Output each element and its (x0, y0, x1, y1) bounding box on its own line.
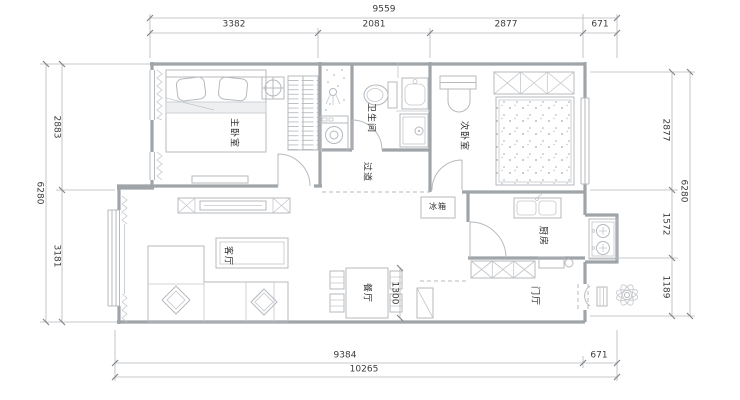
second-bed-icon (496, 97, 574, 185)
room-label-living-room: 客厅 (223, 246, 232, 266)
room-label-master-bedroom: 主卧室 (229, 118, 238, 148)
floor-plan-drawing (0, 0, 740, 400)
dim-dining-width: 1300 (390, 282, 399, 305)
room-label-kitchen: 厨房 (538, 226, 547, 246)
fridge-label: 冰箱 (429, 203, 447, 211)
room-label-entry-hall: 门厅 (530, 286, 539, 306)
ceiling-lamp-icon (262, 77, 284, 99)
room-label-hallway: 过道 (362, 162, 371, 182)
dim-bottom-total: 10265 (350, 366, 379, 375)
entry-door-icon (585, 286, 607, 306)
shower-icon (325, 69, 345, 111)
dim-right-seg-1: 2877 (661, 119, 670, 142)
master-bed-icon (166, 70, 266, 152)
washbasin-icon (402, 78, 428, 109)
floor-plan-canvas: 9559 3382 2081 2877 671 6280 2883 3181 6… (0, 0, 740, 400)
plant-icon (615, 283, 639, 307)
washing-machine-icon (320, 116, 348, 151)
kitchen-sink-icon (514, 193, 561, 218)
room-label-second-bedroom: 次卧室 (459, 121, 468, 151)
hall-cabinet-icon (417, 288, 433, 318)
bedroom-bench-icon (192, 176, 248, 183)
dim-right-seg-3: 1189 (661, 276, 670, 299)
dim-left-total: 6280 (35, 182, 44, 205)
dim-top-seg-3: 2877 (495, 21, 518, 30)
dim-top-seg-1: 3382 (223, 21, 246, 30)
dim-bottom-seg-2: 671 (590, 352, 607, 361)
dim-left-seg-1: 2883 (52, 116, 61, 139)
sofa-icon (148, 246, 288, 322)
dim-bottom-seg-1: 9384 (334, 352, 357, 361)
desk-chair-icon (440, 76, 476, 112)
stove-icon (589, 219, 617, 259)
shower-tray-icon (396, 62, 430, 147)
dim-top-total: 9559 (373, 6, 396, 15)
dim-right-seg-2: 1572 (661, 213, 670, 236)
wardrobe-icon (288, 76, 318, 150)
dim-left-seg-2: 3181 (52, 245, 61, 268)
dim-top-seg-4: 671 (591, 21, 608, 30)
dimension-lines (40, 14, 695, 381)
room-label-bathroom: 卫生间 (366, 103, 375, 133)
closet-hatch-icon (494, 72, 574, 94)
tv-console-icon (178, 198, 290, 213)
dim-top-seg-2: 2081 (363, 21, 386, 30)
room-label-dining-room: 餐厅 (362, 283, 371, 303)
dim-right-total: 6280 (679, 180, 688, 203)
shoe-cabinet-icon (471, 257, 573, 278)
